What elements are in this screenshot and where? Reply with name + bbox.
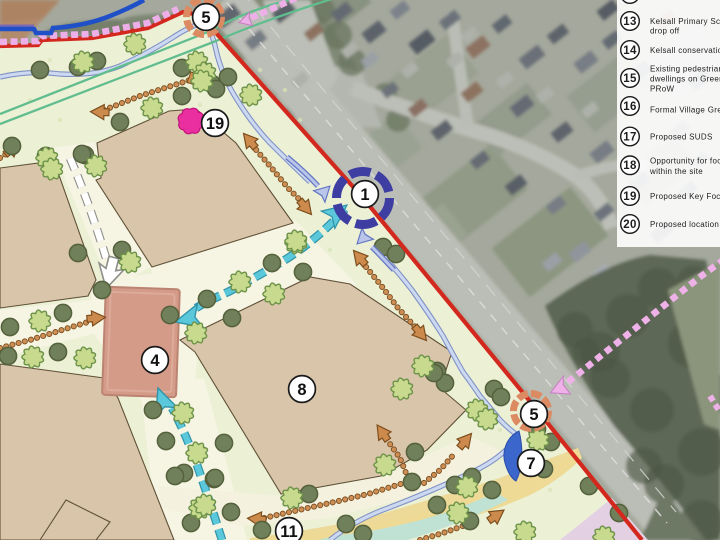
- svg-text:15: 15: [623, 73, 637, 85]
- svg-text:20: 20: [623, 219, 636, 231]
- svg-text:Existing pedestrian links to: Existing pedestrian links to: [650, 64, 720, 73]
- svg-text:Proposed location for new s: Proposed location for new s: [650, 220, 720, 229]
- svg-text:drop off: drop off: [650, 27, 680, 36]
- svg-text:Opportunity for food store: Opportunity for food store: [650, 157, 720, 166]
- svg-text:dwellings on Green Lane an: dwellings on Green Lane an: [650, 75, 720, 84]
- svg-text:19: 19: [623, 191, 636, 203]
- svg-text:5: 5: [529, 406, 538, 424]
- svg-text:within the site: within the site: [649, 167, 703, 176]
- svg-text:8: 8: [297, 381, 306, 399]
- svg-text:Kelsall Primary School -: Kelsall Primary School -: [650, 17, 720, 26]
- svg-text:18: 18: [623, 160, 637, 172]
- svg-text:11: 11: [280, 523, 297, 540]
- svg-text:Proposed Key Focal Space: Proposed Key Focal Space: [650, 192, 720, 201]
- svg-text:PRoW: PRoW: [650, 85, 674, 94]
- svg-text:12: 12: [623, 0, 636, 1]
- svg-text:5: 5: [201, 9, 210, 27]
- svg-text:Formal Village Green: Formal Village Green: [650, 106, 720, 115]
- svg-text:1: 1: [360, 186, 369, 204]
- svg-text:13: 13: [623, 16, 636, 28]
- svg-text:4: 4: [150, 352, 160, 370]
- svg-text:Kelsall conservation area: Kelsall conservation area: [650, 46, 720, 55]
- svg-text:14: 14: [623, 45, 637, 57]
- svg-text:7: 7: [526, 455, 535, 473]
- svg-text:Proposed SUDS: Proposed SUDS: [650, 133, 713, 142]
- svg-text:19: 19: [206, 115, 224, 133]
- svg-text:17: 17: [623, 131, 636, 143]
- svg-text:16: 16: [623, 101, 636, 113]
